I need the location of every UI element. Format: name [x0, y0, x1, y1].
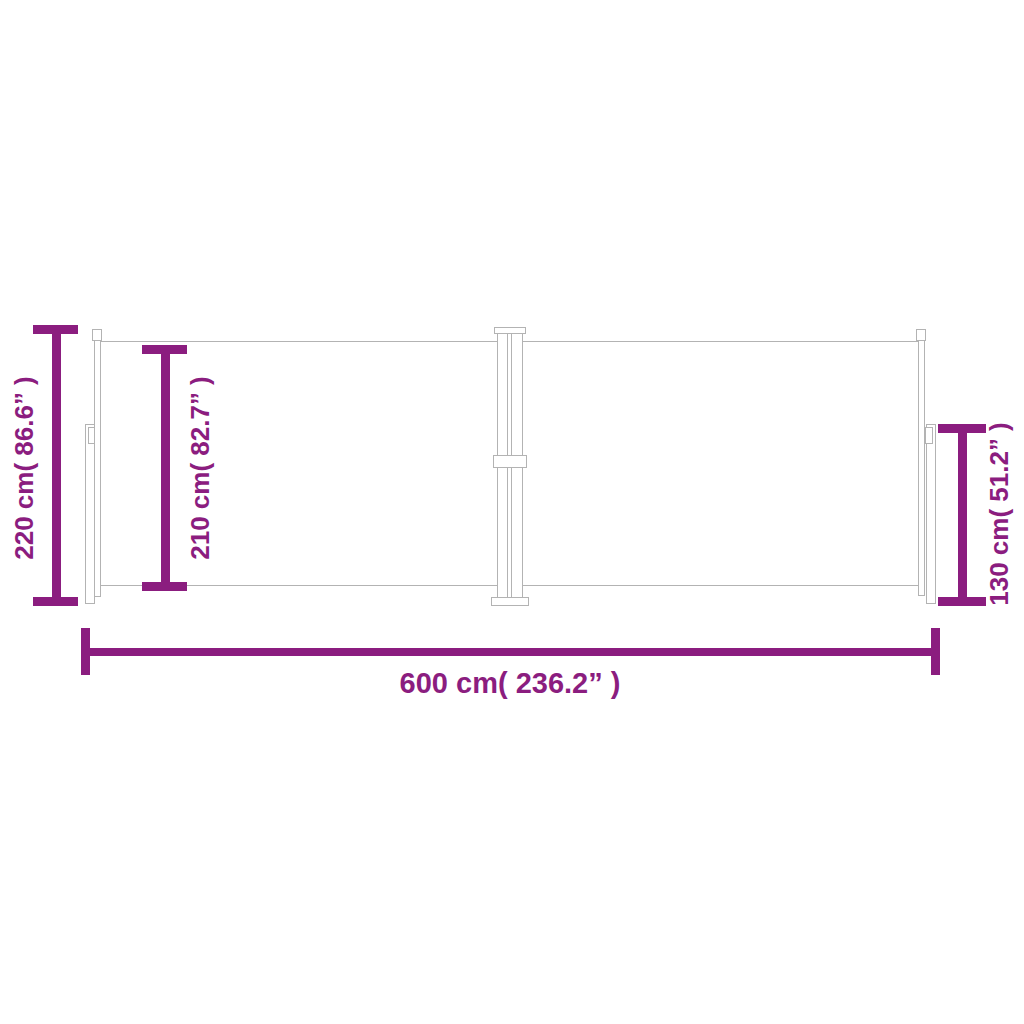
- fabric-height-extent-line: [161, 345, 170, 591]
- center-post-base-plate: [491, 597, 529, 606]
- total-height-label: 220 cm( 86.6” ): [9, 328, 39, 608]
- left-post-top-cap: [92, 329, 102, 341]
- left-end-post: [94, 331, 101, 597]
- total-width-extent-line: [81, 648, 940, 656]
- cassette-height-bottom-tick: [938, 597, 986, 606]
- right-post-top-cap: [916, 329, 926, 341]
- fabric-height-label: 210 cm( 82.7” ): [185, 328, 215, 608]
- total-height-bottom-tick: [33, 597, 78, 606]
- total-width-label: 600 cm( 236.2” ): [360, 668, 660, 702]
- total-height-extent-line: [52, 325, 61, 606]
- right-bracket-hook: [925, 427, 933, 444]
- center-post-connector-band: [493, 455, 527, 468]
- cassette-height-label: 130 cm( 51.2” ): [984, 374, 1014, 654]
- right-handle-bracket: [926, 424, 936, 604]
- awning-dimension-diagram: 220 cm( 86.6” ) 210 cm( 82.7” ) 130 cm( …: [0, 0, 1024, 1024]
- total-width-right-tick: [931, 628, 940, 675]
- fabric-height-bottom-tick: [142, 582, 187, 591]
- cassette-height-extent-line: [958, 424, 967, 606]
- center-post-top-cap: [494, 327, 526, 334]
- right-end-post: [918, 331, 925, 596]
